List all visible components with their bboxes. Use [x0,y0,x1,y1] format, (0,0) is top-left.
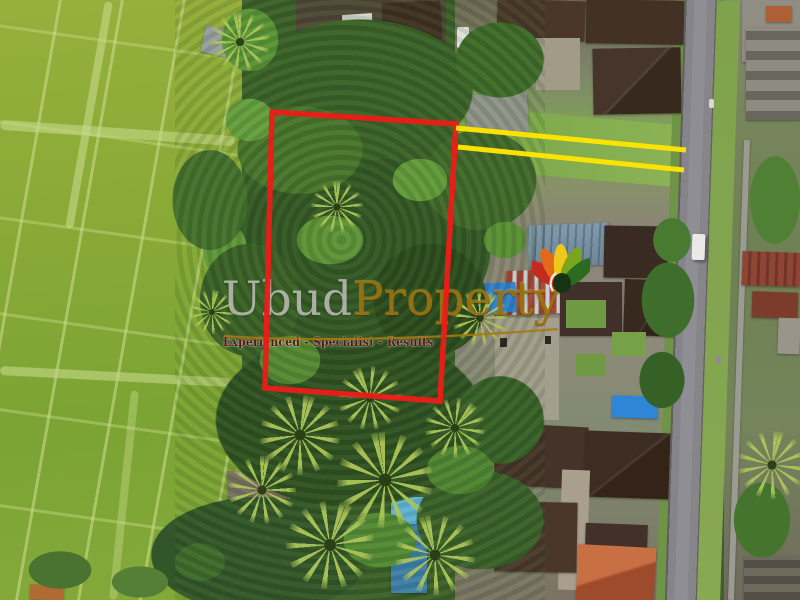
motorbike [709,99,714,108]
garden-lawn [576,354,606,376]
rust-roof [752,291,799,319]
rust-roof [741,251,800,287]
rice-fields [0,0,242,600]
house-roof [382,1,442,42]
garden-lawn [566,300,606,328]
house-roof [604,225,669,278]
shed-roof [375,174,421,216]
house-roof [494,501,577,572]
white-van [457,27,469,48]
house-roof [586,0,685,45]
white-roof [342,13,374,47]
gray-pavilion-roof [465,92,529,135]
house-roof [30,584,65,600]
brand-ubud: Ubud [222,272,352,327]
house-roof [592,47,681,115]
palm-tree [327,355,412,440]
house-roof [496,0,585,42]
motorbike [716,355,721,364]
temple-courtyard [495,318,559,420]
ubud-property-leaf-logo-icon [532,236,590,304]
watermark-brand: UbudProperty [222,276,560,323]
temple-compound [746,28,800,120]
white-truck [692,234,706,260]
house-roof [584,430,674,499]
watermark-tagline: Experienced - Specialist - Results [223,334,434,349]
small-shed-roof [400,225,423,247]
shed-roof [245,422,323,472]
shrine [545,336,551,344]
paddy-bund [65,1,113,229]
shed-roof [227,469,290,513]
stone-structures [744,556,800,600]
blue-tarp [612,395,659,419]
orange-roof [576,544,657,600]
warehouse-metal-roof [285,134,370,196]
shrine [508,382,515,391]
house-roof [766,6,792,22]
paddy-bund [0,366,230,387]
shrine [500,338,507,347]
garden-lawn [612,332,646,356]
debris-patch [372,156,400,173]
rust-roof [437,486,502,532]
courtyard [536,38,580,90]
brand-property: Property [352,272,560,327]
logo-center [553,273,571,293]
swimming-pool [391,497,427,593]
shed-roof [777,318,800,355]
paddy-bund [109,390,139,600]
paddy-bund [0,120,235,146]
aerial-photo: UbudProperty Experienced - Specialist - … [0,0,800,600]
